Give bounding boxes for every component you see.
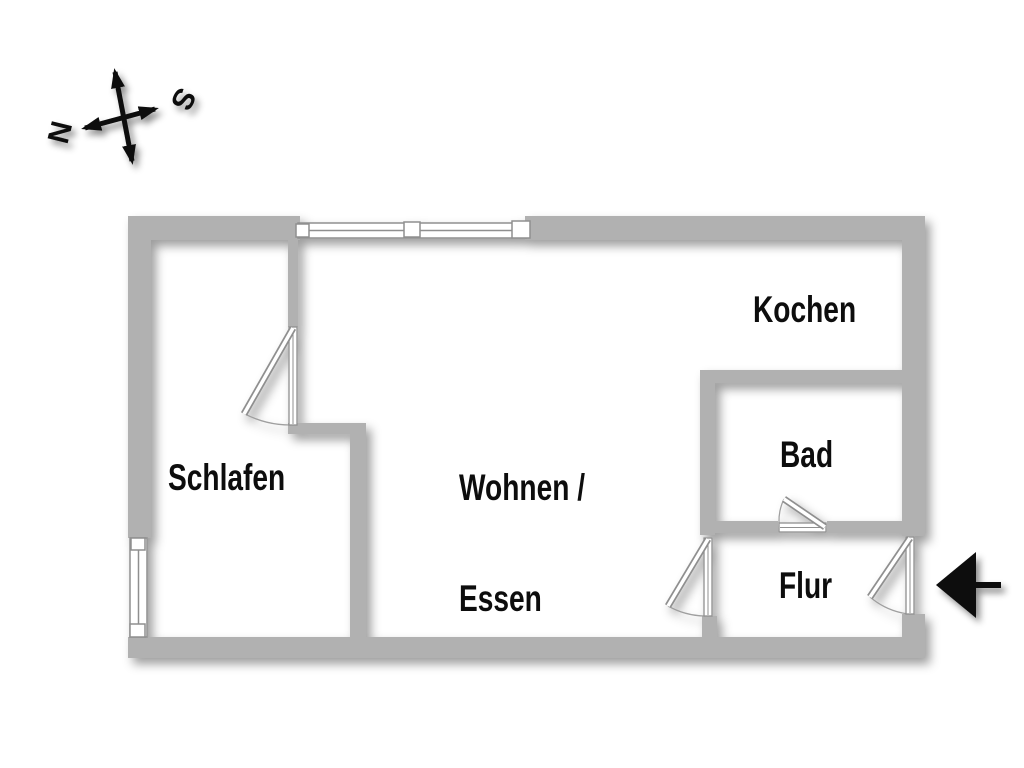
wall-top-right [525, 216, 925, 240]
room-label-flur: Flur [779, 567, 832, 604]
wall-bad-left [700, 370, 715, 535]
room-label-kochen: Kochen [753, 291, 856, 328]
wall-top-left [128, 216, 300, 240]
wall-bad-bottom-right [827, 521, 903, 533]
wall-right-lower [902, 614, 925, 658]
room-label-wohnen-essen: Wohnen / Essen [459, 395, 585, 691]
window-left-icon [130, 538, 147, 637]
room-label-schlafen: Schlafen [168, 459, 285, 496]
door-schlafen-icon [244, 327, 297, 425]
wall-schlafen-upper [288, 240, 298, 327]
floorplan-canvas: N S Schlafen Wohnen / Essen Kochen Bad F… [0, 0, 1024, 768]
entrance-arrow-icon [936, 552, 1001, 618]
compass-south-label: S [164, 82, 203, 115]
compass-north-label: N [40, 117, 77, 146]
compass-rose-icon: N S [40, 72, 202, 161]
wall-left [128, 216, 151, 538]
wall-bad-bottom-left [700, 521, 778, 533]
wall-right-upper [902, 216, 925, 536]
window-top-icon [296, 221, 530, 238]
door-flur-icon [668, 538, 712, 616]
room-label-bad: Bad [780, 436, 833, 473]
room-label-wohnen-line1: Wohnen / [459, 469, 585, 506]
door-entrance-icon [870, 537, 914, 614]
door-bad-icon [779, 499, 826, 532]
wall-flur-stub [702, 616, 717, 638]
room-label-wohnen-line2: Essen [459, 580, 585, 617]
wall-bad-top [700, 370, 903, 383]
wall-schlafen-vertical [350, 423, 366, 637]
